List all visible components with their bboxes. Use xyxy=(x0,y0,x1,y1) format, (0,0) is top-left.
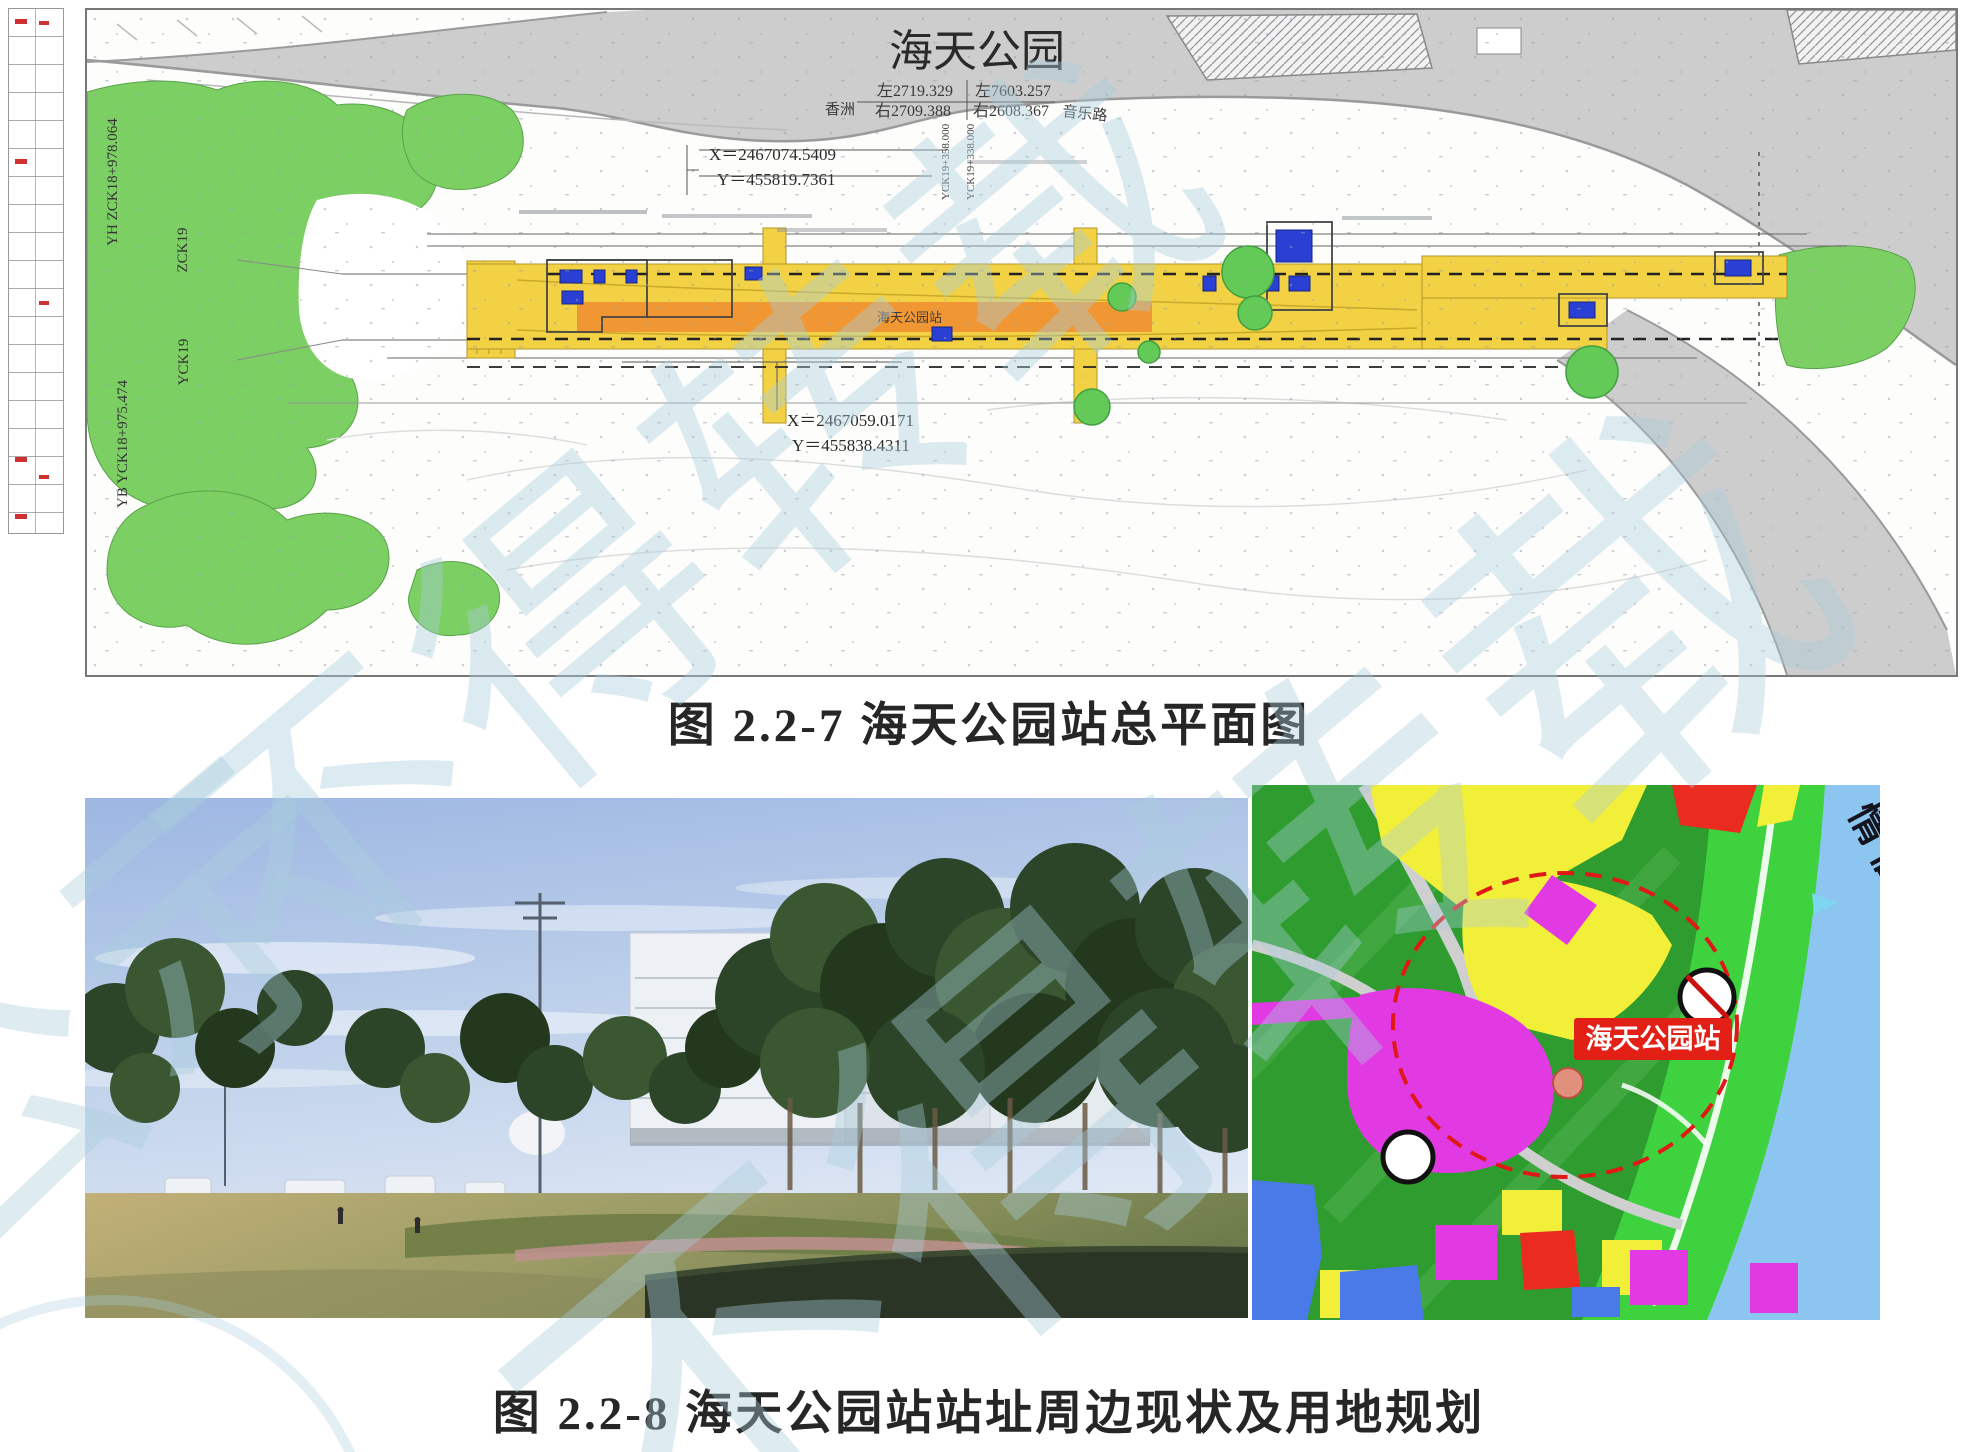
figure-caption-2-2-7: 图 2.2-7 海天公园站总平面图 xyxy=(0,686,1978,755)
grass-field xyxy=(85,1193,1248,1318)
station-name-small: 海天公园站 xyxy=(877,310,942,325)
coord-row2-left: 右2709.388 xyxy=(875,102,951,120)
station-label: 海天公园站 xyxy=(1574,1018,1732,1060)
callout1-x: X＝2467074.5409 xyxy=(709,145,836,164)
red-tick xyxy=(15,19,27,24)
coord-row1-left: 左2719.329 xyxy=(877,82,953,100)
figure-station-site-plan: 海天公园 香洲 左2719.329 左7603.257 右2709.388 右2… xyxy=(85,8,1958,677)
red-tick xyxy=(39,475,49,479)
coord-row2-right: 右2608.367 xyxy=(973,102,1049,120)
site-plan-drawing: 海天公园 香洲 左2719.329 左7603.257 右2709.388 右2… xyxy=(87,10,1956,675)
plan-title: 海天公园 xyxy=(889,27,1065,76)
park-photo-graphic xyxy=(85,798,1248,1318)
label-xiangzhou: 香洲 xyxy=(825,101,855,118)
plan-coordinate-table-strip xyxy=(8,8,64,534)
callout2-y: Y＝455838.4311 xyxy=(792,436,910,455)
land-use-planning-map: 海天公园站 情侣东路 xyxy=(1252,785,1880,1320)
red-tick xyxy=(39,21,49,25)
red-tick xyxy=(15,159,27,164)
coord-row1-right: 左7603.257 xyxy=(975,82,1051,100)
mileage-1: YCK19+358.000 xyxy=(940,123,952,200)
red-tick xyxy=(15,457,27,462)
callout1-y: Y＝455819.7361 xyxy=(717,170,836,189)
planning-map-graphic: 海天公园站 情侣东路 xyxy=(1252,785,1880,1320)
document-page: 海天公园 香洲 左2719.329 左7603.257 右2709.388 右2… xyxy=(0,0,1978,1452)
red-tick xyxy=(15,514,27,519)
site-photo xyxy=(85,798,1248,1318)
mileage-2: YCK19+338.000 xyxy=(965,123,977,200)
figure-caption-2-2-8: 图 2.2-8 海天公园站站址周边现状及用地规划 xyxy=(0,1374,1978,1443)
red-tick xyxy=(39,301,49,305)
chainage-yh: YH ZCK18+978.064 xyxy=(105,118,121,246)
callout2-x: X＝2467059.0171 xyxy=(787,411,914,430)
station-label-text: 海天公园站 xyxy=(1586,1024,1721,1054)
chainage-yck19: YCK19 xyxy=(176,339,192,386)
chainage-yb: YB YCK18+975.474 xyxy=(115,380,131,508)
chainage-zck19: ZCK19 xyxy=(175,228,191,273)
